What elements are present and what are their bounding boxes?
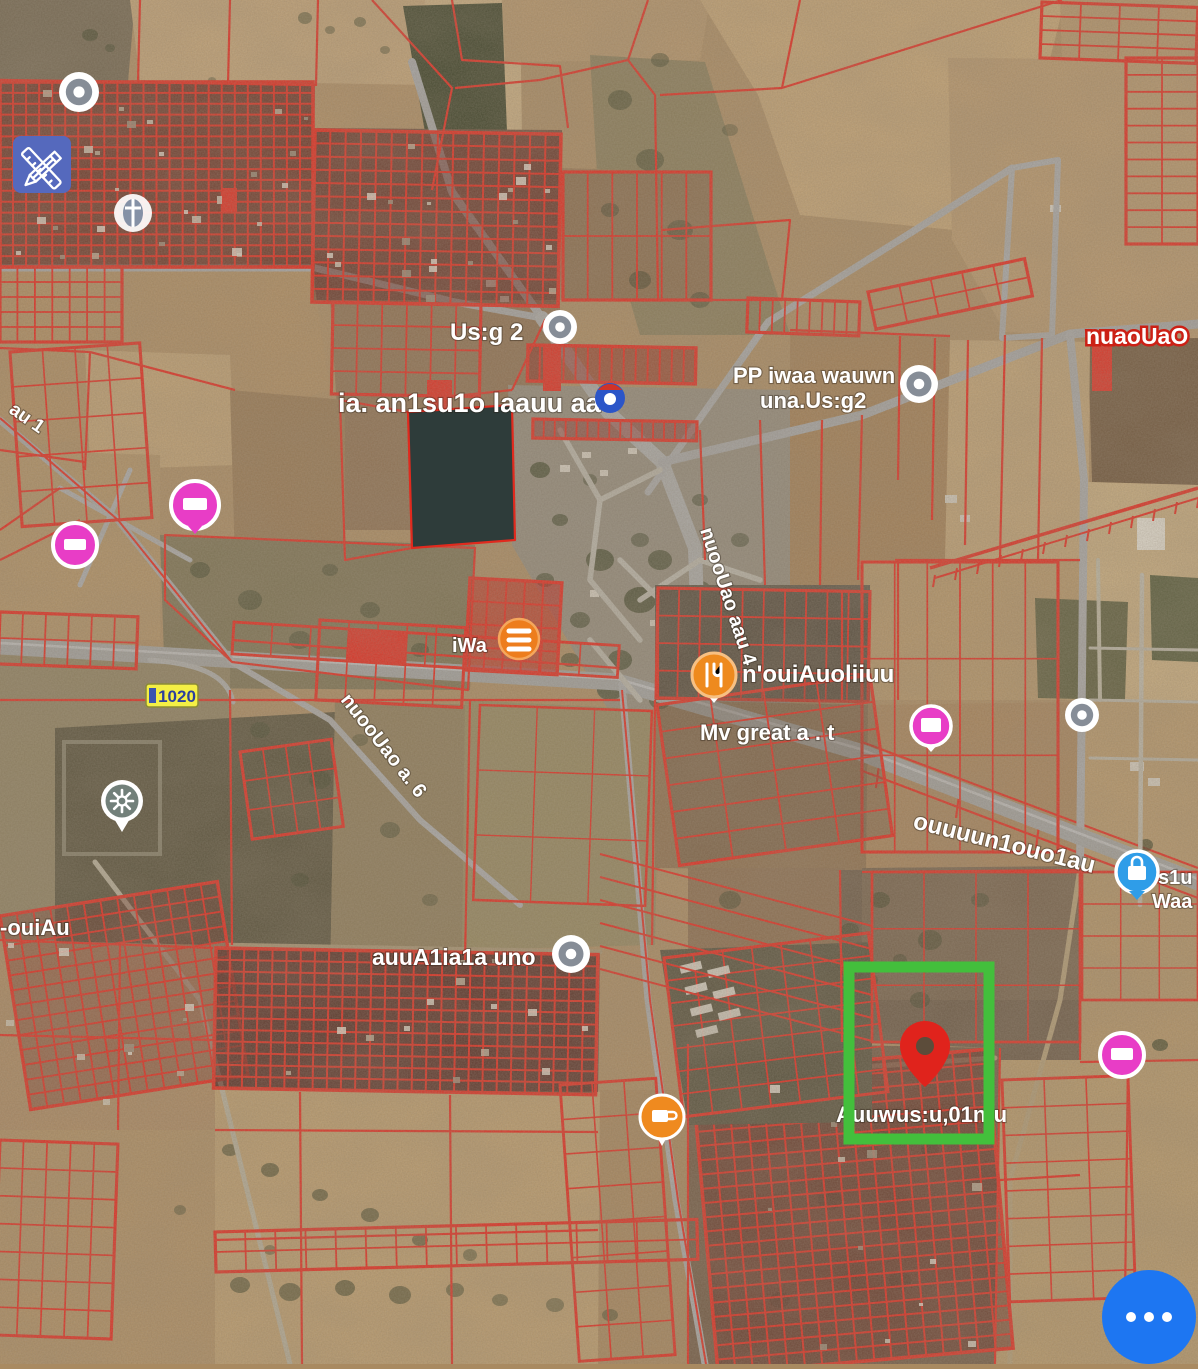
svg-text:PP iwaa wauwn: PP iwaa wauwn bbox=[733, 363, 895, 388]
svg-text:nuaoUaO: nuaoUaO bbox=[1086, 323, 1188, 349]
svg-text:Mv great a . t: Mv great a . t bbox=[700, 720, 835, 745]
svg-text:Us:g 2: Us:g 2 bbox=[450, 319, 523, 346]
svg-text:s1u: s1u bbox=[1158, 867, 1192, 889]
svg-text:auuA1ia1a uno: auuA1ia1a uno bbox=[372, 944, 536, 970]
svg-text:una.Us:g2: una.Us:g2 bbox=[760, 388, 866, 413]
svg-text:-ouiAu: -ouiAu bbox=[0, 915, 70, 940]
svg-text:Waa: Waa bbox=[1152, 891, 1193, 913]
svg-text:iWa: iWa bbox=[452, 635, 488, 657]
svg-text:ia. an1su1o laauu aa: ia. an1su1o laauu aa bbox=[338, 388, 602, 418]
svg-text:n'ouiAuoliiuu: n'ouiAuoliiuu bbox=[742, 661, 894, 688]
svg-text:Auuwus:u,01n-u: Auuwus:u,01n-u bbox=[836, 1102, 1007, 1127]
svg-text:1020: 1020 bbox=[158, 687, 196, 706]
